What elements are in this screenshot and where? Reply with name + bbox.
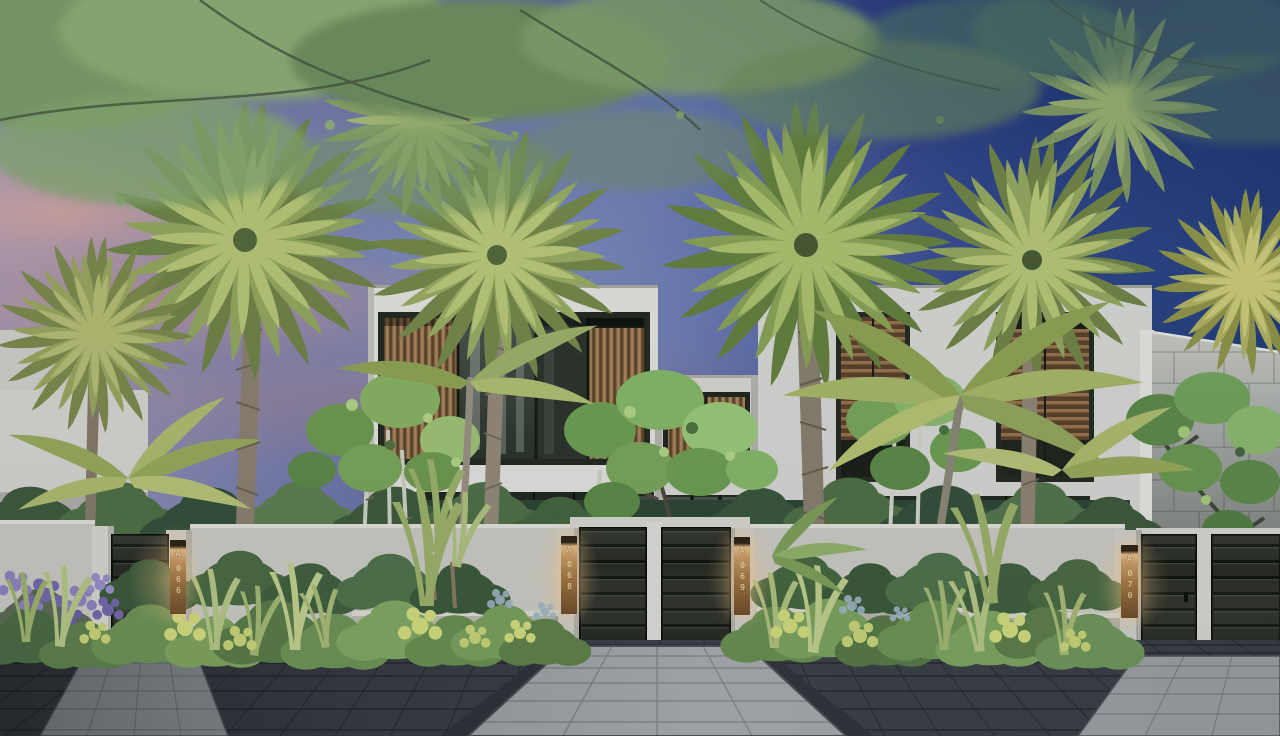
plate-number: 069 [738, 561, 746, 594]
plate-letter: A [1127, 555, 1132, 563]
villa-exterior-rendering: A 066 A 068 A 069 A 070 [0, 0, 1280, 736]
plate-number: 066 [174, 564, 182, 597]
plate-number: 068 [565, 560, 573, 593]
plate-letter: A [740, 547, 745, 555]
plate-letter: A [567, 546, 572, 554]
gate-plate-068: A 068 [561, 536, 577, 614]
plate-letter: A [176, 550, 181, 558]
gate-plate-066: A 066 [170, 540, 186, 614]
gate-plate-070: A 070 [1121, 545, 1138, 618]
plate-number: 070 [1126, 569, 1134, 602]
scene-artwork [0, 0, 1280, 736]
gate-plate-069: A 069 [734, 537, 750, 615]
gate-panel-069 [662, 528, 730, 652]
gate-panel-068 [580, 528, 646, 652]
